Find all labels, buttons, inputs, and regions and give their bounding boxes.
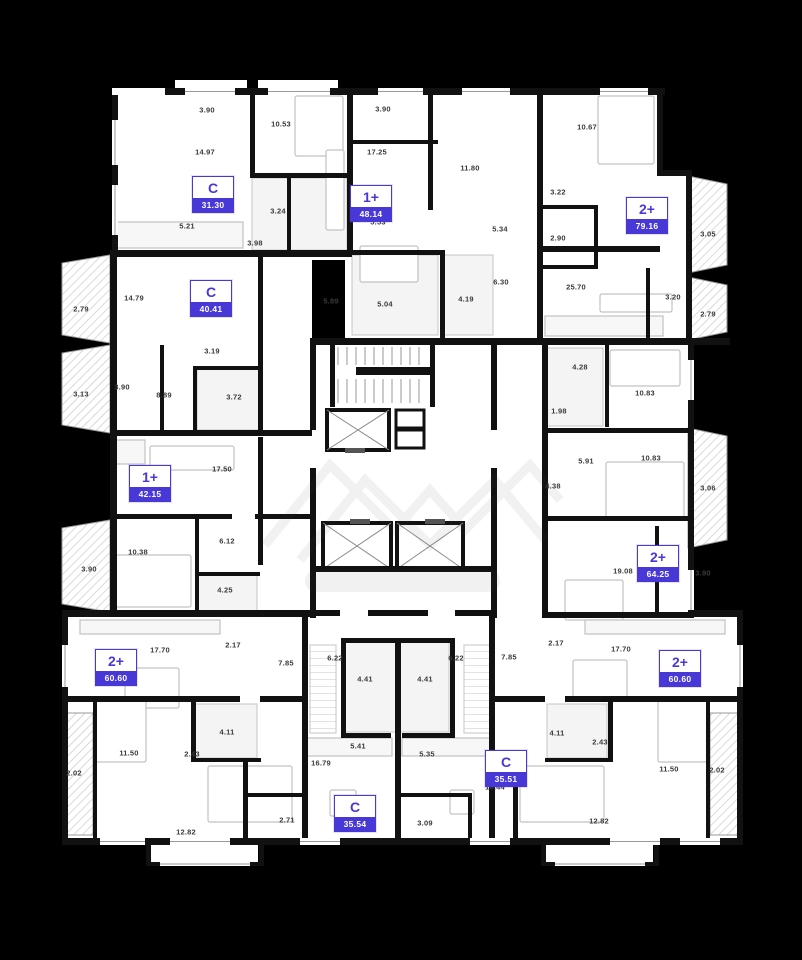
room-area-label: 12.82 bbox=[176, 828, 196, 837]
room-area-label: 6.22 bbox=[327, 654, 342, 663]
room-area-label: 4.41 bbox=[417, 675, 432, 684]
apartment-area: 79.16 bbox=[626, 219, 668, 234]
room-area-label: 3.24 bbox=[270, 207, 285, 216]
room-area-label: 2.43 bbox=[184, 750, 199, 759]
room-area-label: 5.04 bbox=[377, 300, 392, 309]
room-area-label: 3.90 bbox=[114, 383, 129, 392]
apartment-badge[interactable]: C 35.54 bbox=[334, 795, 376, 832]
room-area-label: 17.70 bbox=[150, 646, 170, 655]
room-area-label: 10.67 bbox=[577, 123, 597, 132]
room-area-label: 3.09 bbox=[417, 819, 432, 828]
apartment-badge[interactable]: 1+ 42.15 bbox=[129, 465, 171, 502]
apartment-badge[interactable]: 2+ 60.60 bbox=[659, 650, 701, 687]
apartment-badge[interactable]: 2+ 64.25 bbox=[637, 545, 679, 582]
apartment-type: C bbox=[190, 280, 232, 302]
apartment-type: C bbox=[192, 176, 234, 198]
room-area-label: 6.22 bbox=[448, 654, 463, 663]
apartment-type: C bbox=[334, 795, 376, 817]
room-area-label: 4.25 bbox=[217, 586, 232, 595]
room-area-label: 11.80 bbox=[460, 164, 479, 173]
room-area-label: 7.85 bbox=[501, 653, 516, 662]
room-area-label: 1.98 bbox=[551, 407, 566, 416]
room-area-label: 6.30 bbox=[493, 278, 508, 287]
apartment-type: 2+ bbox=[626, 197, 668, 219]
room-area-label: 2.17 bbox=[548, 639, 563, 648]
floor-plan-page: 3.9014.9710.535.213.243.983.9017.2511.80… bbox=[0, 0, 802, 960]
room-area-label: 17.70 bbox=[611, 645, 631, 654]
apartment-area: 31.30 bbox=[192, 198, 234, 213]
room-area-label: 4.11 bbox=[550, 729, 565, 738]
room-area-label: 5.35 bbox=[419, 750, 434, 759]
room-area-label: 7.85 bbox=[278, 659, 293, 668]
apartment-area: 35.54 bbox=[334, 817, 376, 832]
room-area-label: 3.90 bbox=[199, 106, 214, 115]
room-area-label: 2.43 bbox=[592, 738, 607, 747]
room-area-label: 11.50 bbox=[659, 765, 678, 774]
room-area-label: 3.20 bbox=[665, 293, 680, 302]
room-area-label: 14.97 bbox=[195, 148, 215, 157]
apartment-type: 1+ bbox=[350, 185, 392, 207]
room-area-label: 11.50 bbox=[119, 749, 138, 758]
room-area-label: 3.90 bbox=[81, 565, 96, 574]
room-area-label: 14.79 bbox=[124, 294, 144, 303]
room-area-label: 6.12 bbox=[219, 537, 234, 546]
apartment-badge[interactable]: 2+ 60.60 bbox=[95, 649, 137, 686]
room-area-label: 5.34 bbox=[492, 225, 507, 234]
room-area-label: 5.41 bbox=[350, 742, 365, 751]
apartment-badge[interactable]: 2+ 79.16 bbox=[626, 197, 668, 234]
room-area-label: 12.82 bbox=[589, 817, 609, 826]
room-area-label: 2.02 bbox=[709, 766, 724, 775]
room-area-label: 10.83 bbox=[641, 454, 661, 463]
room-area-label: 10.53 bbox=[271, 120, 291, 129]
apartment-area: 60.60 bbox=[95, 671, 137, 686]
room-area-label: 3.90 bbox=[375, 105, 390, 114]
room-area-label: 3.19 bbox=[204, 347, 219, 356]
room-area-label: 4.19 bbox=[458, 295, 473, 304]
room-area-label: 8.89 bbox=[156, 391, 171, 400]
apartment-area: 48.14 bbox=[350, 207, 392, 222]
apartment-type: 2+ bbox=[659, 650, 701, 672]
apartment-area: 42.15 bbox=[129, 487, 171, 502]
room-area-label: 17.50 bbox=[212, 465, 232, 474]
room-area-label: 16.79 bbox=[311, 759, 331, 768]
room-area-label: 3.05 bbox=[700, 230, 715, 239]
room-area-label: 3.98 bbox=[247, 239, 262, 248]
room-area-label: 5.91 bbox=[578, 457, 593, 466]
apartment-badge[interactable]: C 31.30 bbox=[192, 176, 234, 213]
apartment-area: 64.25 bbox=[637, 567, 679, 582]
apartment-area: 35.51 bbox=[485, 772, 527, 787]
room-area-label: 5.21 bbox=[179, 222, 194, 231]
room-area-label: 5.89 bbox=[323, 297, 338, 306]
room-area-label: 2.17 bbox=[225, 641, 240, 650]
apartment-type: C bbox=[485, 750, 527, 772]
room-area-label: 2.79 bbox=[700, 310, 715, 319]
apartment-badge[interactable]: C 35.51 bbox=[485, 750, 527, 787]
room-area-label: 2.79 bbox=[73, 305, 88, 314]
room-area-label: 4.38 bbox=[545, 482, 560, 491]
room-area-label: 3.72 bbox=[226, 393, 241, 402]
apartment-badge[interactable]: C 40.41 bbox=[190, 280, 232, 317]
room-area-label: 25.70 bbox=[566, 283, 586, 292]
room-area-label: 3.22 bbox=[550, 188, 565, 197]
room-area-label: 4.41 bbox=[357, 675, 372, 684]
room-area-label: 4.11 bbox=[220, 728, 235, 737]
apartment-area: 40.41 bbox=[190, 302, 232, 317]
room-area-label: 19.08 bbox=[613, 567, 633, 576]
apartment-type: 1+ bbox=[129, 465, 171, 487]
apartment-type: 2+ bbox=[95, 649, 137, 671]
room-area-label: 4.28 bbox=[572, 363, 587, 372]
room-area-label: 2.90 bbox=[550, 234, 565, 243]
apartment-badge[interactable]: 1+ 48.14 bbox=[350, 185, 392, 222]
room-area-label: 3.13 bbox=[73, 390, 88, 399]
floor-plan-graphic bbox=[0, 0, 802, 960]
apartment-area: 60.60 bbox=[659, 672, 701, 687]
room-area-label: 10.83 bbox=[635, 389, 655, 398]
room-area-label: 2.02 bbox=[66, 769, 81, 778]
room-area-label: 10.38 bbox=[128, 548, 148, 557]
room-area-label: 3.06 bbox=[700, 484, 715, 493]
room-area-label: 3.90 bbox=[695, 569, 710, 578]
room-area-label: 2.71 bbox=[279, 816, 294, 825]
apartment-type: 2+ bbox=[637, 545, 679, 567]
room-area-label: 17.25 bbox=[367, 148, 387, 157]
